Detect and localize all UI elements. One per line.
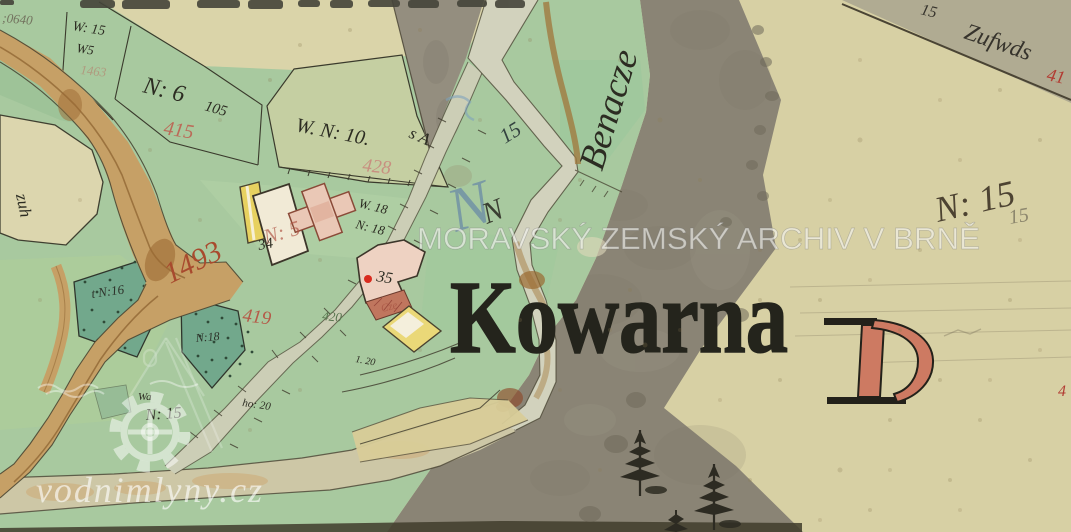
svg-text:420: 420	[322, 308, 343, 325]
svg-text:MORAVSKÝ ZEMSKÝ ARCHIV V BRNĚ: MORAVSKÝ ZEMSKÝ ARCHIV V BRNĚ	[417, 221, 980, 256]
svg-text:4: 4	[1058, 383, 1066, 400]
svg-text:35: 35	[374, 268, 393, 287]
svg-text:W5: W5	[76, 40, 96, 58]
svg-text:415: 415	[162, 117, 195, 143]
svg-text:1463: 1463	[80, 62, 108, 80]
svg-text:;0640: ;0640	[2, 10, 34, 28]
svg-text:N:18: N:18	[194, 329, 220, 345]
svg-text:Wa: Wa	[138, 391, 152, 403]
svg-text:15: 15	[1007, 204, 1031, 229]
svg-text:Kowarna: Kowarna	[450, 260, 788, 375]
svg-text:419: 419	[241, 305, 272, 329]
svg-text:428: 428	[361, 155, 392, 179]
svg-text:vodnimlyny.cz: vodnimlyny.cz	[36, 470, 262, 510]
